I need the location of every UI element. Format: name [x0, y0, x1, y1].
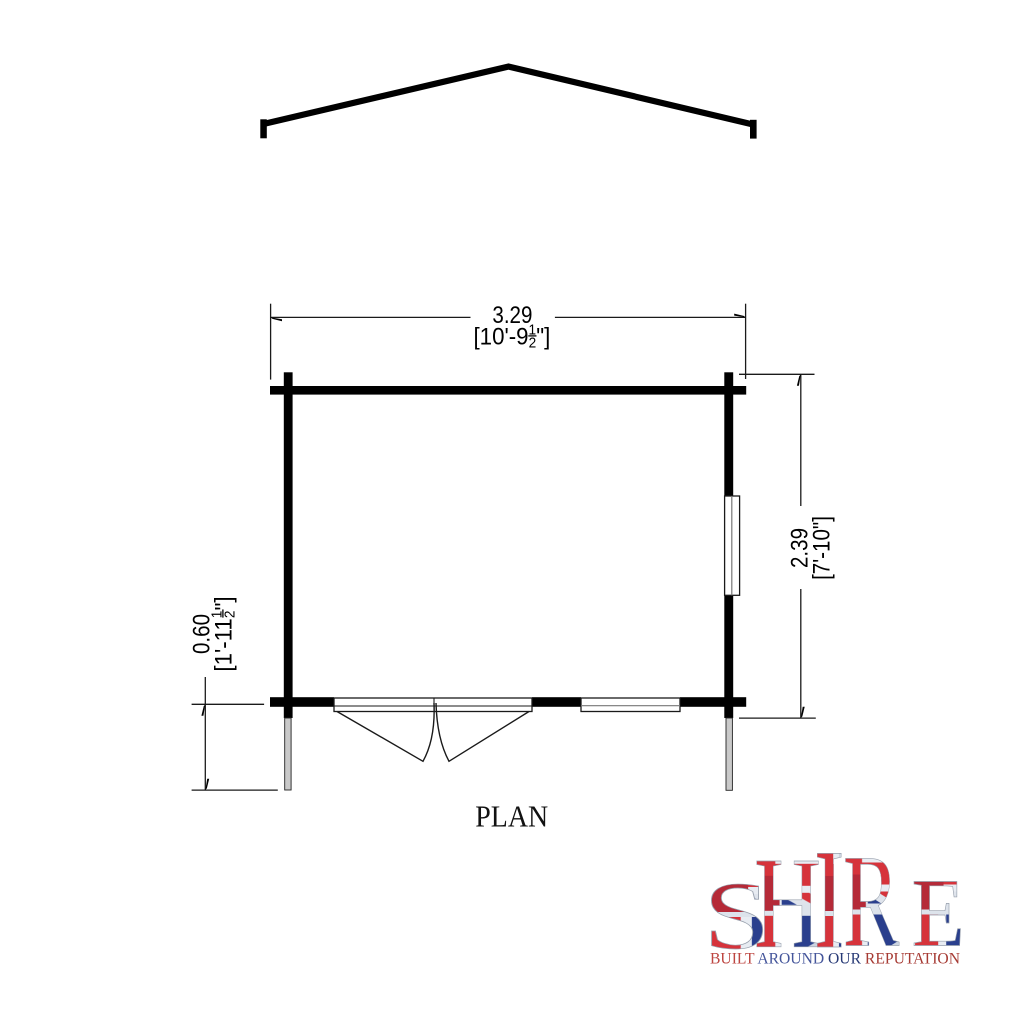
- svg-text:[7'-10"]: [7'-10"]: [808, 516, 835, 580]
- svg-text:PLAN: PLAN: [475, 800, 548, 834]
- svg-text:BUILT AROUND OUR REPUTATION: BUILT AROUND OUR REPUTATION: [710, 951, 960, 968]
- svg-text:[10'-912"]: [10'-912"]: [473, 322, 550, 352]
- svg-text:[1'-1112"]: [1'-1112"]: [209, 596, 239, 671]
